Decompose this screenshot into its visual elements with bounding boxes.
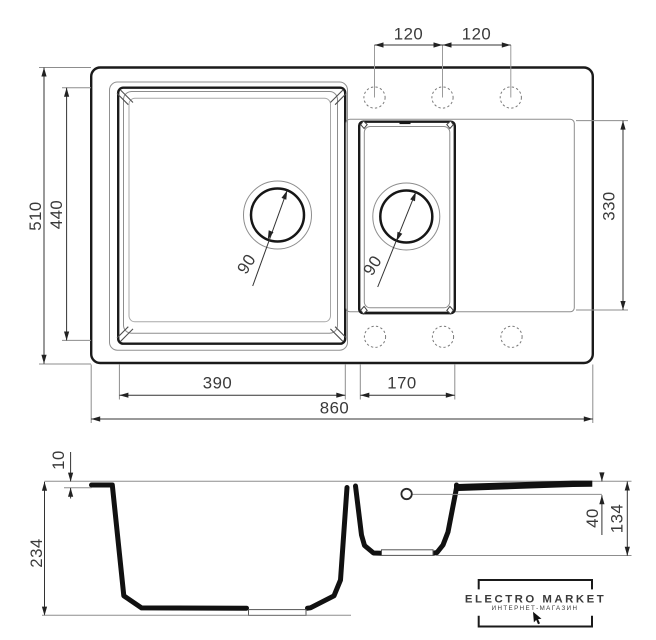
svg-text:440: 440 bbox=[47, 200, 66, 230]
svg-text:ELECTRO MARKET: ELECTRO MARKET bbox=[465, 594, 606, 606]
svg-text:ИНТЕРНЕТ-МАГАЗИН: ИНТЕРНЕТ-МАГАЗИН bbox=[492, 605, 579, 612]
svg-text:170: 170 bbox=[387, 373, 417, 392]
svg-text:40: 40 bbox=[583, 508, 602, 528]
svg-text:860: 860 bbox=[320, 398, 350, 417]
svg-text:10: 10 bbox=[49, 450, 68, 470]
svg-text:234: 234 bbox=[27, 538, 46, 568]
svg-text:120: 120 bbox=[462, 25, 492, 44]
svg-text:330: 330 bbox=[599, 191, 618, 221]
svg-text:390: 390 bbox=[203, 373, 233, 392]
svg-text:510: 510 bbox=[26, 201, 45, 231]
svg-text:134: 134 bbox=[608, 504, 627, 534]
svg-text:120: 120 bbox=[394, 25, 424, 44]
